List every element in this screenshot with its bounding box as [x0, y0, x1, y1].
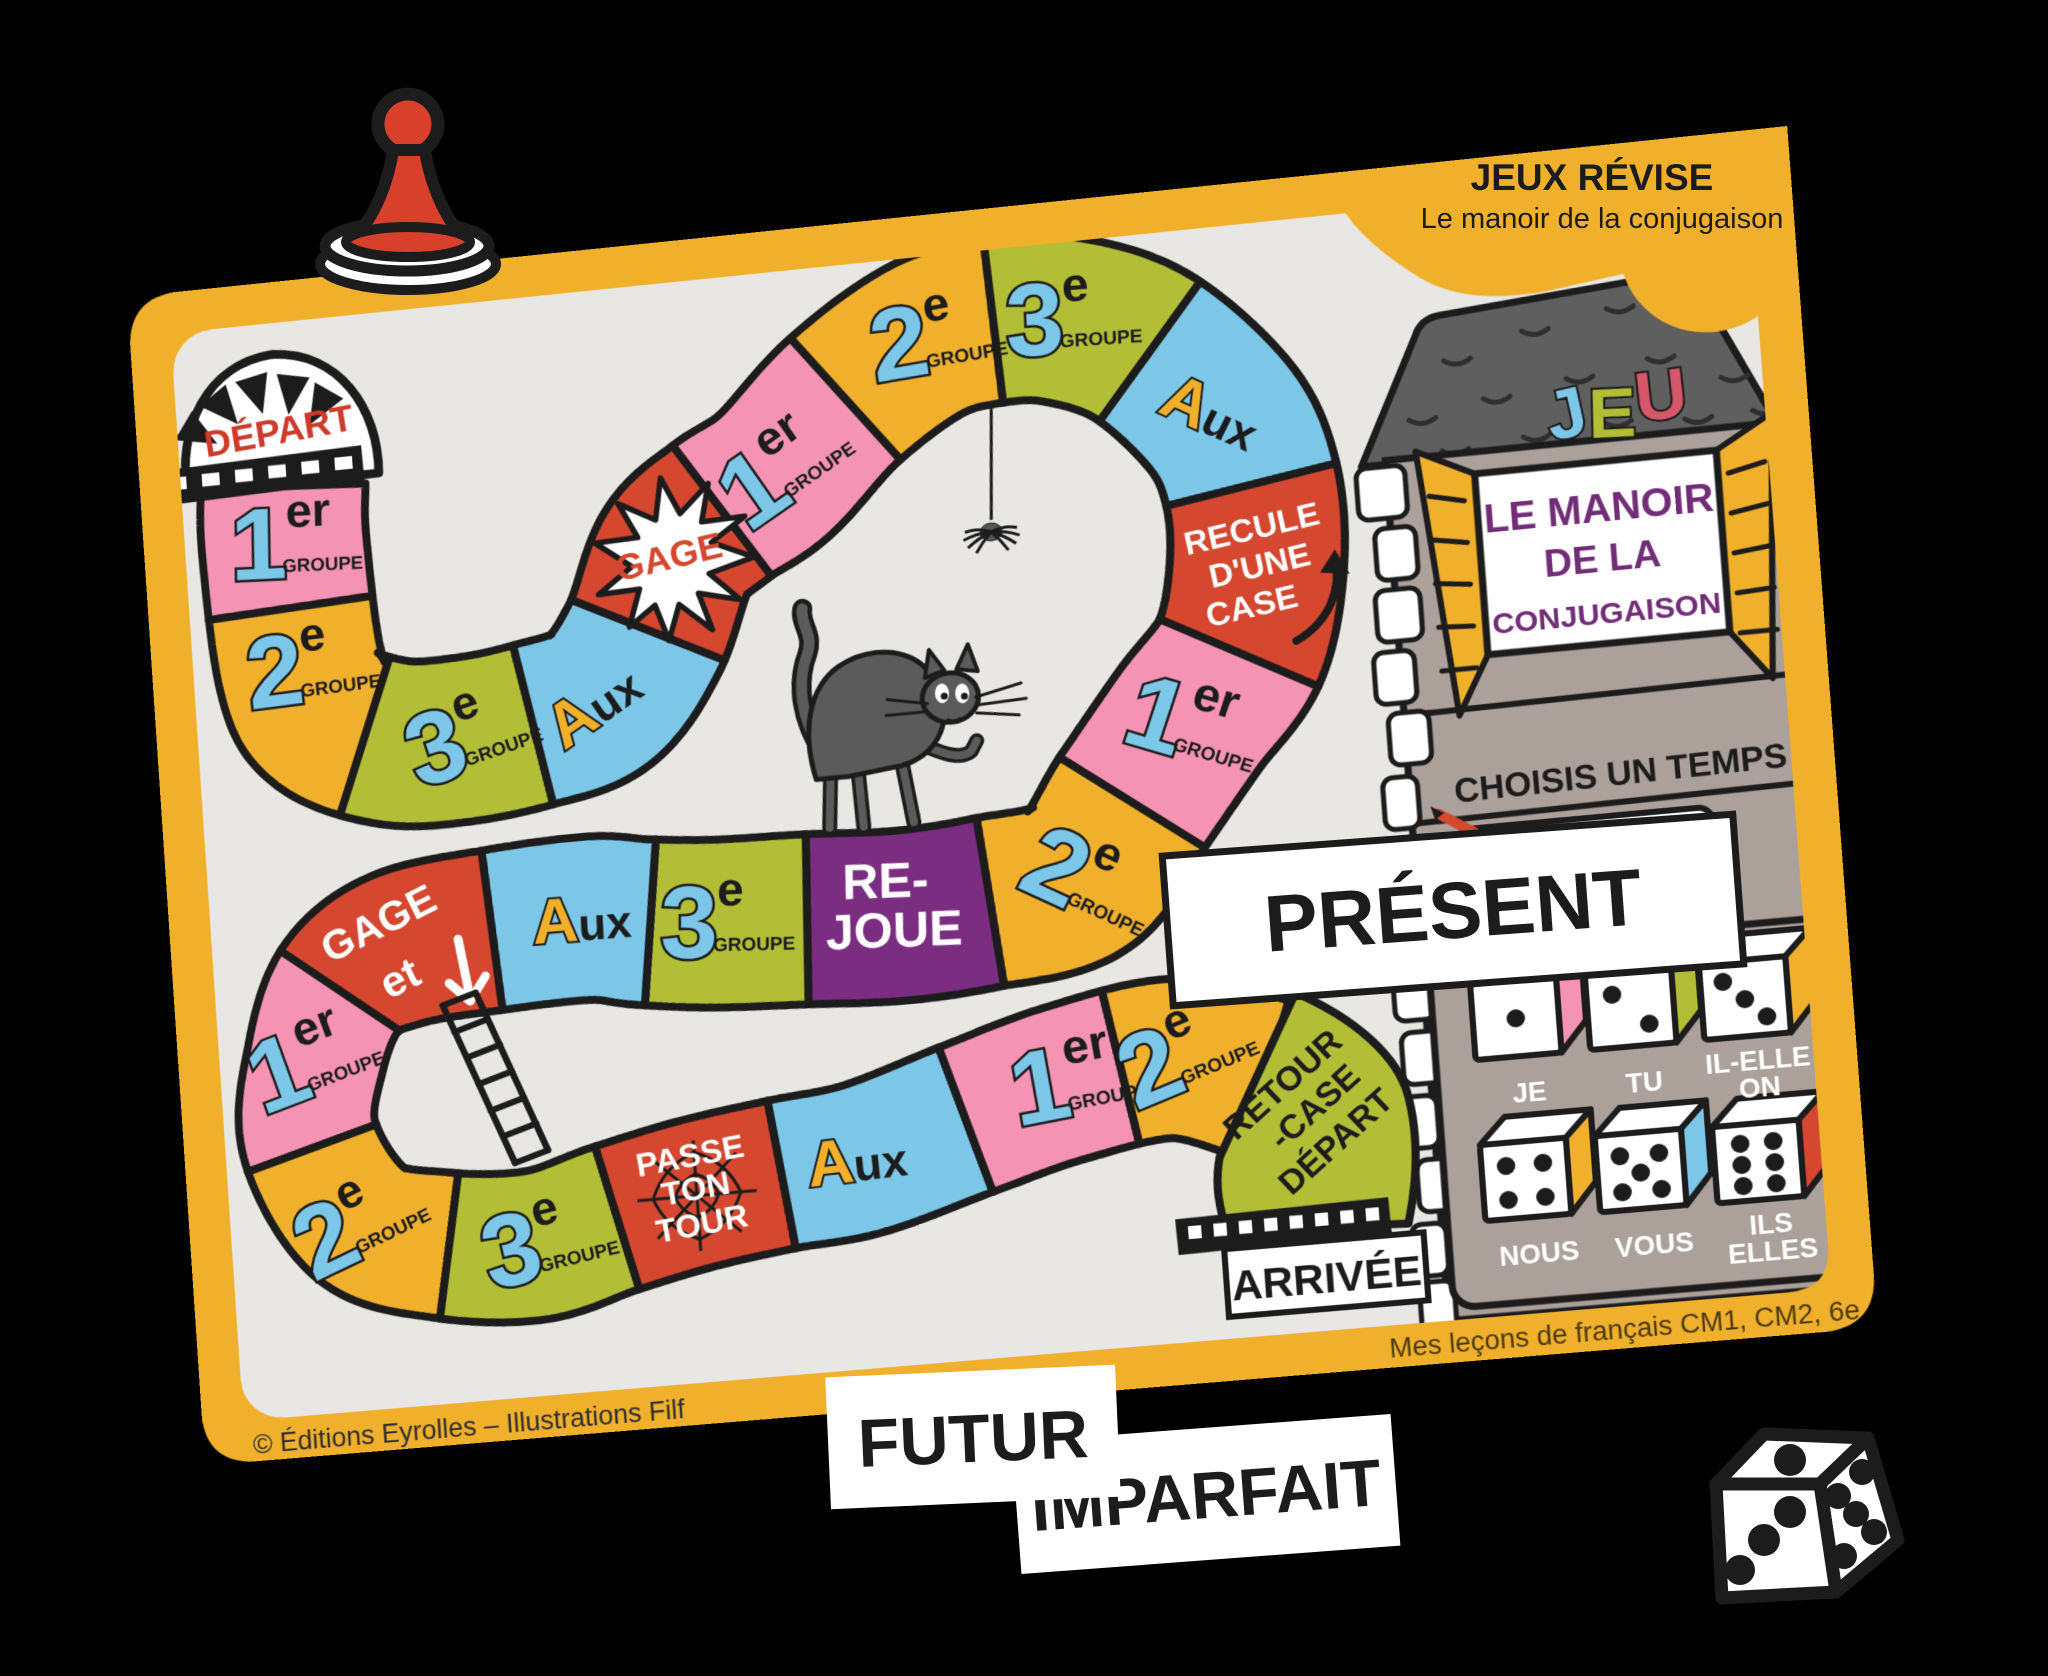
svg-text:FUTUR: FUTUR — [856, 1396, 1090, 1482]
svg-text:JEUX RÉVISE: JEUX RÉVISE — [1471, 157, 1714, 198]
svg-text:Le manoir de la conjugaison: Le manoir de la conjugaison — [1421, 203, 1784, 235]
